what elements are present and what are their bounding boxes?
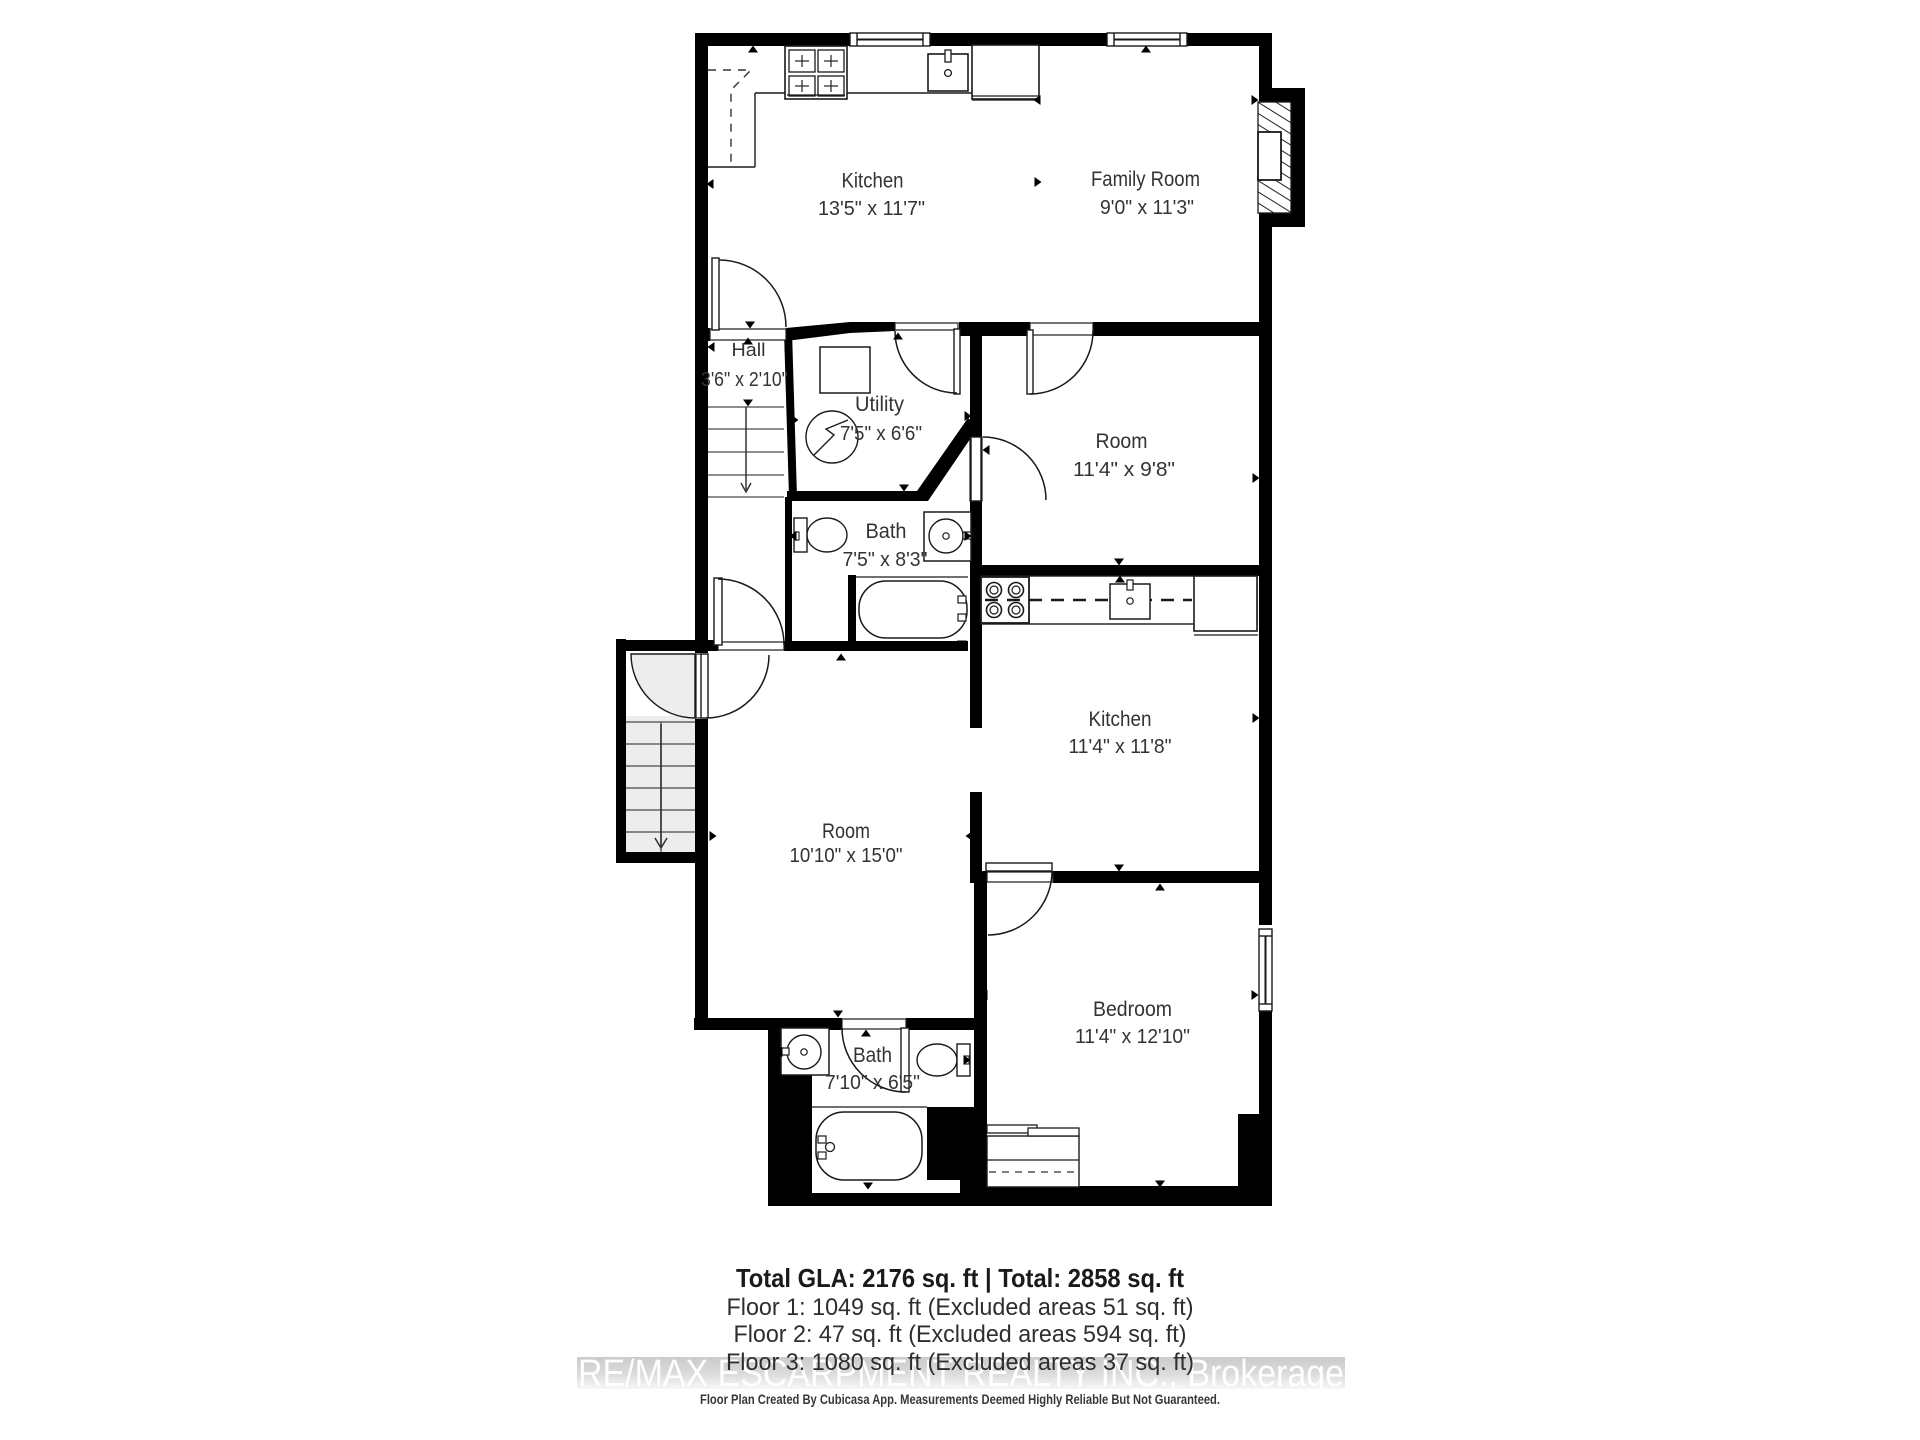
svg-text:Kitchen: Kitchen [842,170,904,193]
svg-text:Floor 2: 47 sq. ft (Excluded a: Floor 2: 47 sq. ft (Excluded areas 594 s… [734,1321,1187,1348]
svg-text:Family Room: Family Room [1091,168,1200,191]
svg-text:Utility: Utility [855,393,904,416]
svg-text:Hall: Hall [732,339,766,360]
svg-text:11'4" x 12'10": 11'4" x 12'10" [1075,1026,1190,1048]
svg-text:Room: Room [822,820,870,843]
svg-text:3'6" x 2'10": 3'6" x 2'10" [701,369,788,391]
svg-text:10'10" x 15'0": 10'10" x 15'0" [790,845,903,867]
svg-text:Floor Plan Created By Cubicasa: Floor Plan Created By Cubicasa App. Meas… [700,1391,1220,1407]
svg-text:Room: Room [1096,430,1148,453]
svg-text:Floor 1: 1049 sq. ft (Excluded: Floor 1: 1049 sq. ft (Excluded areas 51 … [727,1294,1194,1321]
svg-text:Bath: Bath [853,1044,892,1067]
svg-text:Bath: Bath [866,520,907,543]
svg-text:Kitchen: Kitchen [1089,708,1152,731]
svg-text:Floor 3: 1080 sq. ft (Excluded: Floor 3: 1080 sq. ft (Excluded areas 37 … [726,1349,1194,1376]
svg-text:7'10" x 6'5": 7'10" x 6'5" [825,1072,920,1094]
svg-text:7'5" x 6'6": 7'5" x 6'6" [840,423,922,445]
svg-text:7'5" x 8'3": 7'5" x 8'3" [843,549,928,571]
svg-text:11'4" x 9'8": 11'4" x 9'8" [1073,459,1175,481]
svg-text:Bedroom: Bedroom [1093,998,1172,1021]
svg-text:13'5" x 11'7": 13'5" x 11'7" [818,198,925,220]
svg-text:11'4" x 11'8": 11'4" x 11'8" [1069,736,1172,758]
svg-text:Total GLA: 2176 sq. ft | Total: Total GLA: 2176 sq. ft | Total: 2858 sq.… [736,1263,1184,1293]
svg-text:9'0" x 11'3": 9'0" x 11'3" [1100,197,1194,219]
